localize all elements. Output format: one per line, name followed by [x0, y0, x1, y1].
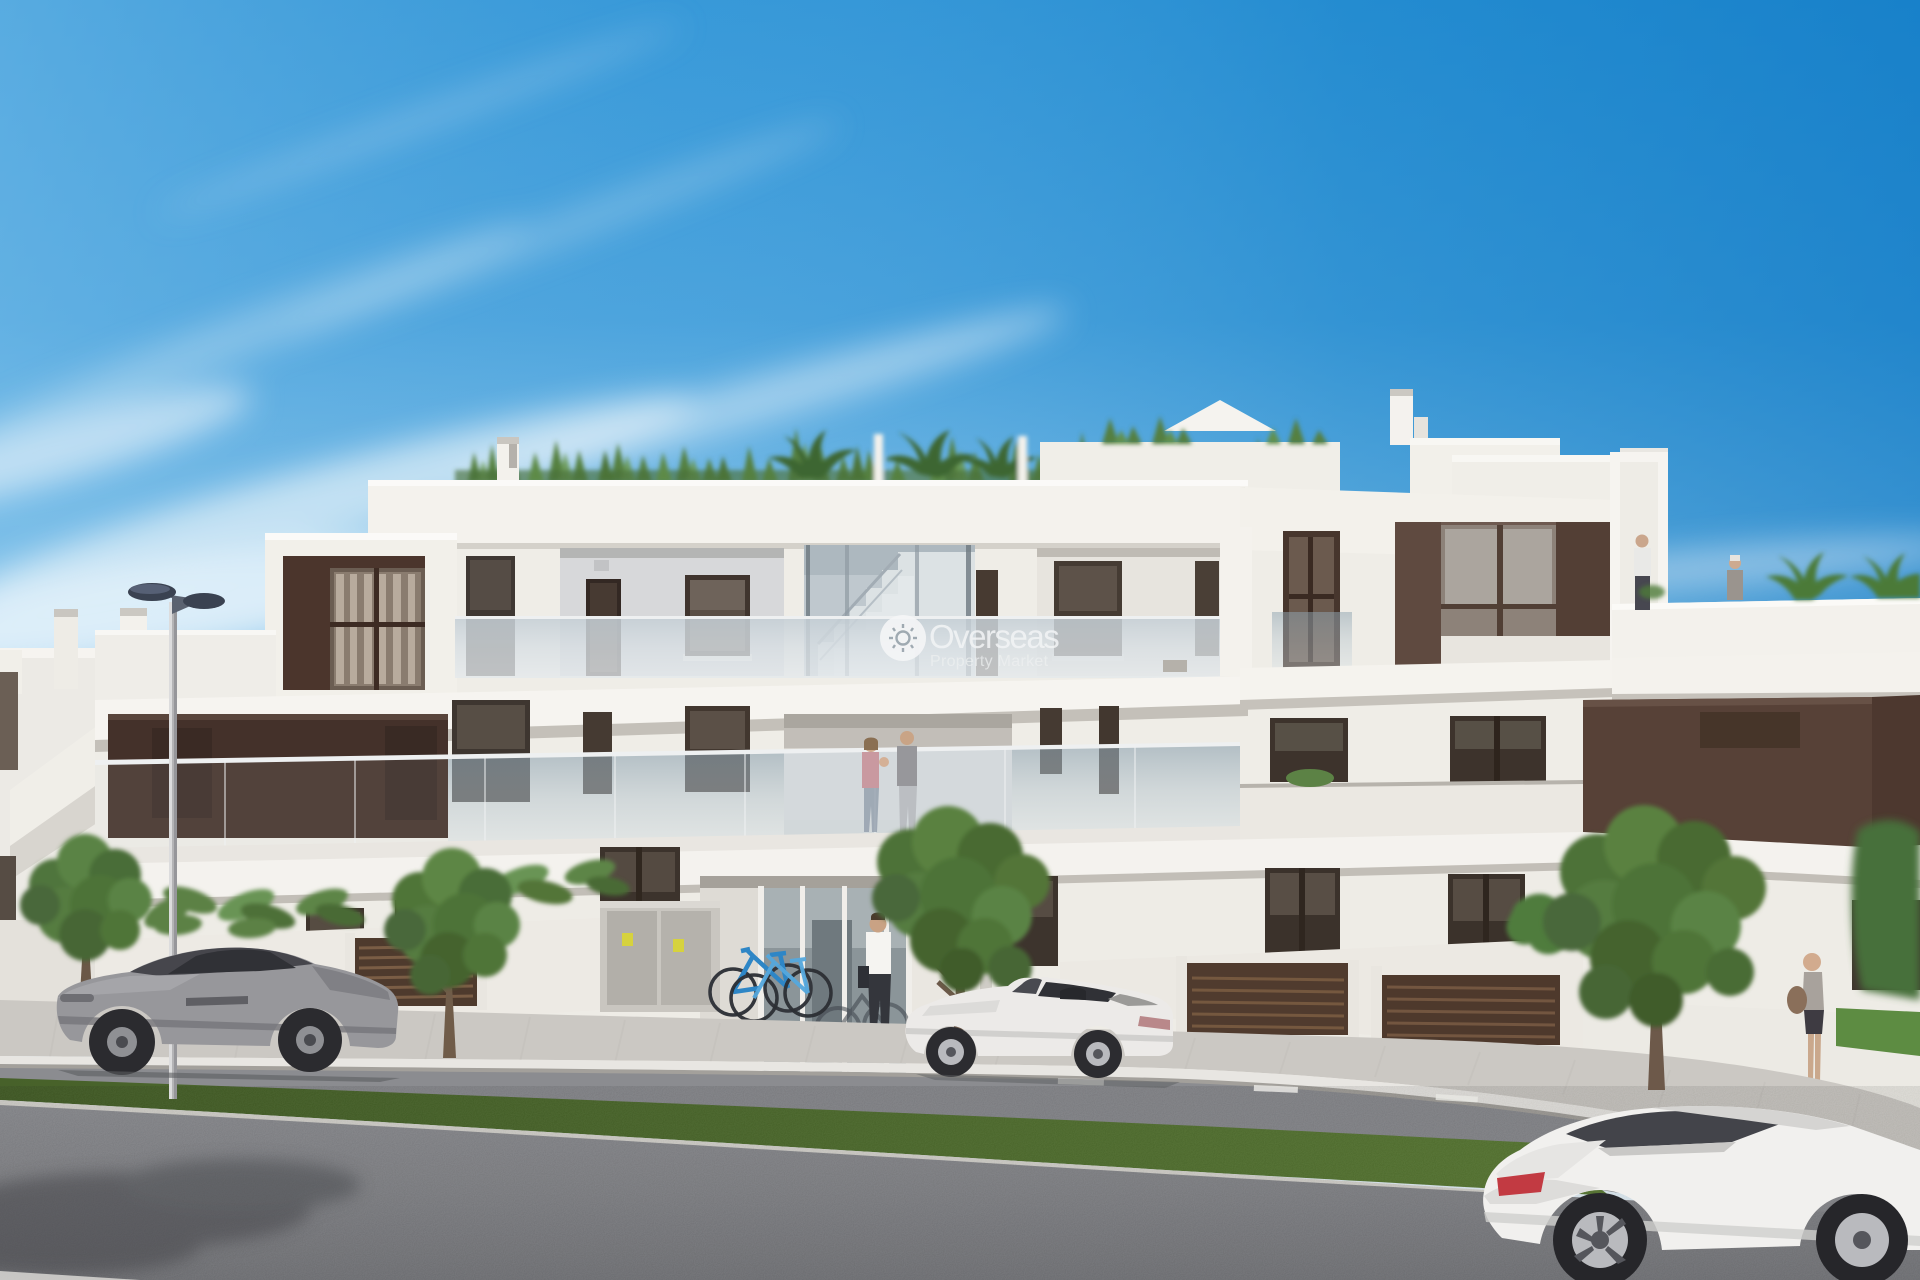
- svg-text:Overseas: Overseas: [929, 618, 1059, 655]
- svg-text:Property Market: Property Market: [930, 653, 1049, 670]
